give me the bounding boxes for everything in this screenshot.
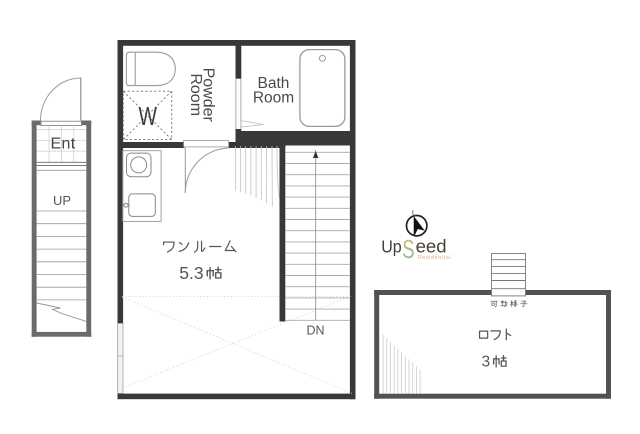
svg-text:Room: Room [187, 73, 204, 116]
svg-text:DN: DN [306, 324, 324, 338]
svg-text:Room: Room [253, 89, 294, 106]
svg-text:5.3: 5.3 [179, 263, 203, 283]
svg-text:Ent: Ent [51, 136, 76, 153]
svg-text:3: 3 [482, 353, 491, 370]
svg-text:Up: Up [381, 236, 402, 256]
svg-text:UP: UP [53, 193, 71, 208]
svg-text:eed: eed [416, 236, 447, 256]
svg-text:Residential: Residential [418, 255, 452, 261]
svg-text:W: W [138, 101, 157, 131]
svg-text:S: S [402, 234, 414, 264]
